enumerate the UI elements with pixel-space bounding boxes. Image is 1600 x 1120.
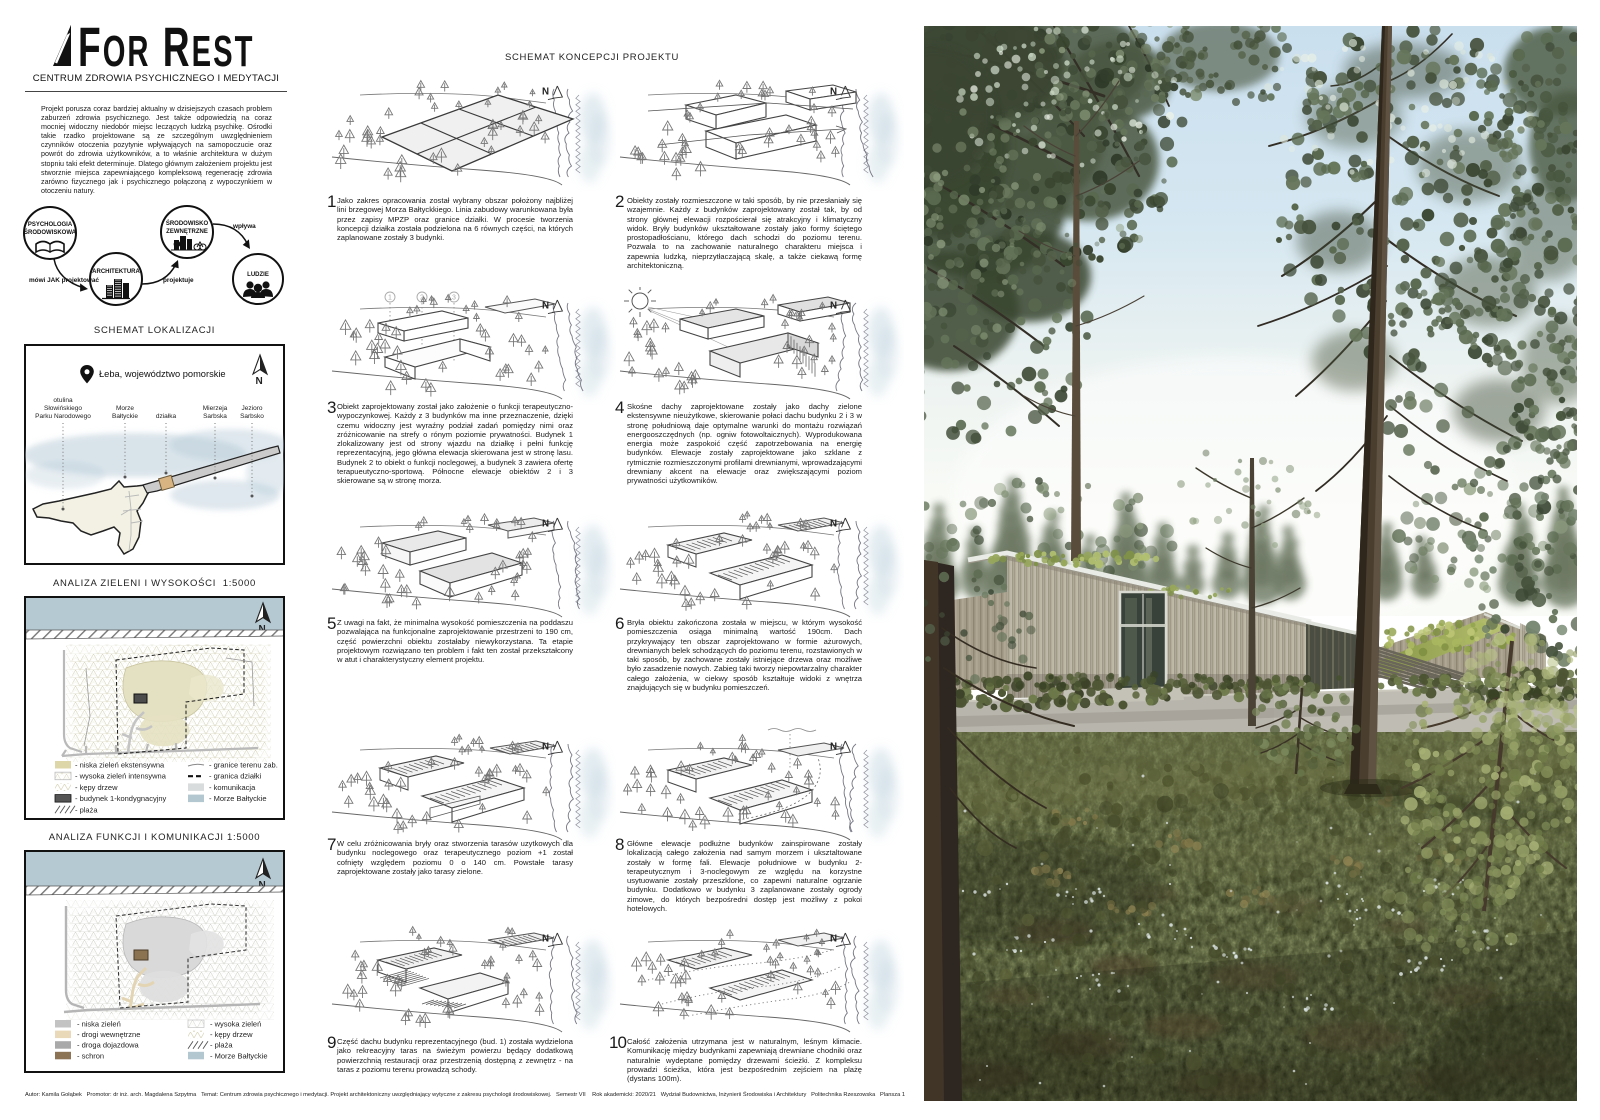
svg-text:N: N bbox=[542, 87, 549, 98]
svg-text:N: N bbox=[830, 742, 837, 753]
svg-text:N: N bbox=[542, 301, 549, 312]
svg-text:N: N bbox=[830, 934, 837, 945]
svg-text:Morze: Morze bbox=[116, 405, 134, 412]
svg-text:N: N bbox=[256, 376, 263, 387]
svg-text:Mierzeja: Mierzeja bbox=[203, 405, 228, 412]
svg-text:ARCHITEKTURA: ARCHITEKTURA bbox=[92, 269, 140, 275]
svg-text:- granice terenu zab.: - granice terenu zab. bbox=[209, 761, 278, 770]
svg-text:N: N bbox=[830, 87, 837, 98]
svg-text:- wysoka zieleń intensywna: - wysoka zieleń intensywna bbox=[75, 772, 167, 781]
svg-text:Sarbska: Sarbska bbox=[203, 413, 227, 420]
svg-text:Łeba, województwo pomorskie: Łeba, województwo pomorskie bbox=[99, 369, 226, 379]
svg-text:Parku Narodowego: Parku Narodowego bbox=[35, 413, 91, 420]
svg-text:N: N bbox=[830, 301, 837, 312]
svg-text:- niska zieleń ekstensywna: - niska zieleń ekstensywna bbox=[75, 761, 165, 770]
svg-text:- granica działki: - granica działki bbox=[209, 772, 261, 781]
svg-text:otulina: otulina bbox=[53, 397, 73, 404]
svg-text:ŚRODOWISKOWA: ŚRODOWISKOWA bbox=[24, 229, 77, 236]
svg-text:FOR REST: FOR REST bbox=[78, 22, 254, 68]
svg-text:projektuje: projektuje bbox=[163, 277, 194, 284]
svg-text:- droga dojazdowa: - droga dojazdowa bbox=[77, 1041, 140, 1050]
svg-text:N: N bbox=[542, 934, 549, 945]
svg-text:- wysoka zieleń: - wysoka zieleń bbox=[210, 1020, 261, 1029]
svg-text:działka: działka bbox=[156, 413, 177, 420]
svg-text:- Morze Bałtyckie: - Morze Bałtyckie bbox=[209, 794, 267, 803]
svg-text:3: 3 bbox=[452, 295, 456, 302]
svg-text:Jezioro: Jezioro bbox=[242, 405, 263, 412]
svg-text:- kępy drzew: - kępy drzew bbox=[210, 1030, 253, 1039]
svg-text:ŚRODOWISKO: ŚRODOWISKO bbox=[166, 220, 209, 227]
svg-text:wpływa: wpływa bbox=[232, 223, 256, 230]
svg-text:N: N bbox=[830, 519, 837, 530]
svg-text:- plaża: - plaża bbox=[210, 1041, 233, 1050]
svg-text:N: N bbox=[542, 519, 549, 530]
svg-text:- schron: - schron bbox=[77, 1051, 104, 1060]
svg-text:- plaża: - plaża bbox=[75, 805, 98, 814]
svg-text:Bałtyckie: Bałtyckie bbox=[112, 413, 138, 420]
svg-text:- niska zieleń: - niska zieleń bbox=[77, 1020, 121, 1029]
svg-text:mówi JAK projektować: mówi JAK projektować bbox=[29, 277, 99, 284]
svg-text:ZEWNĘTRZNE: ZEWNĘTRZNE bbox=[166, 229, 208, 235]
svg-text:1: 1 bbox=[388, 295, 392, 302]
svg-text:- drogi wewnętrzne: - drogi wewnętrzne bbox=[77, 1030, 140, 1039]
svg-text:- budynek 1-kondygnacyjny: - budynek 1-kondygnacyjny bbox=[75, 794, 167, 803]
svg-text:Słowińskiego: Słowińskiego bbox=[44, 405, 82, 412]
svg-text:N: N bbox=[542, 742, 549, 753]
svg-text:LUDZIE: LUDZIE bbox=[247, 272, 269, 278]
svg-text:- Morze Bałtyckie: - Morze Bałtyckie bbox=[210, 1051, 268, 1060]
svg-text:- kępy drzew: - kępy drzew bbox=[75, 783, 118, 792]
svg-text:Sarbsko: Sarbsko bbox=[240, 413, 264, 420]
svg-text:PSYCHOLOGIA: PSYCHOLOGIA bbox=[28, 222, 73, 228]
svg-text:- komunikacja: - komunikacja bbox=[209, 783, 256, 792]
